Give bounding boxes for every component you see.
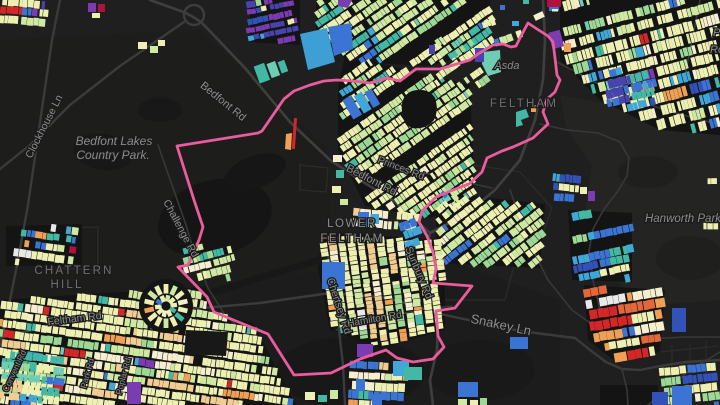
svg-text:Hanworth Park: Hanworth Park <box>645 213 720 225</box>
svg-text:HILL: HILL <box>50 279 83 291</box>
svg-text:Pa: Pa <box>713 27 720 39</box>
svg-text:CHATTERN: CHATTERN <box>34 265 113 277</box>
svg-text:FELTHAM: FELTHAM <box>320 233 383 245</box>
svg-text:Ro: Ro <box>710 44 720 56</box>
svg-text:LOWER: LOWER <box>327 218 377 230</box>
svg-text:Asda: Asda <box>493 60 519 72</box>
svg-text:Bedfont Lakes: Bedfont Lakes <box>76 134 153 148</box>
svg-text:FELTHAM: FELTHAM <box>490 98 558 110</box>
svg-text:Country Park.: Country Park. <box>76 148 149 162</box>
